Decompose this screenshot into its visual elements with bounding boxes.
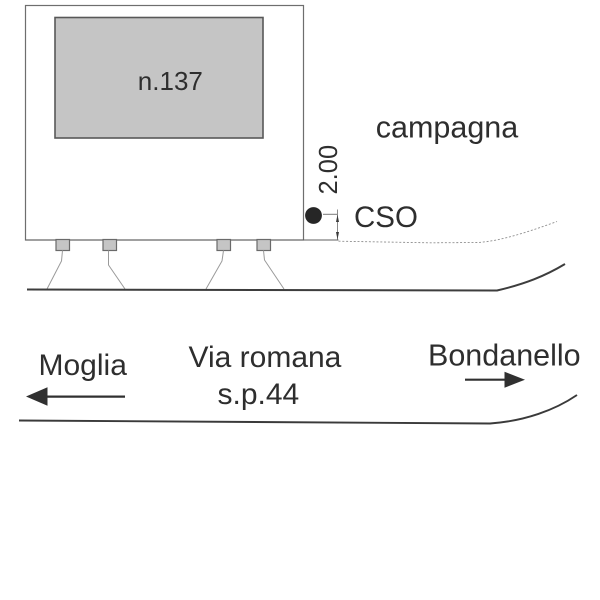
- svg-text:CSO: CSO: [354, 201, 418, 234]
- svg-text:Moglia: Moglia: [39, 349, 128, 382]
- svg-text:n.137: n.137: [138, 66, 203, 96]
- svg-text:s.p.44: s.p.44: [218, 378, 300, 411]
- svg-text:campagna: campagna: [376, 111, 518, 145]
- svg-text:Bondanello: Bondanello: [428, 339, 581, 373]
- svg-text:2.00: 2.00: [315, 145, 343, 195]
- svg-text:Via romana: Via romana: [189, 341, 342, 374]
